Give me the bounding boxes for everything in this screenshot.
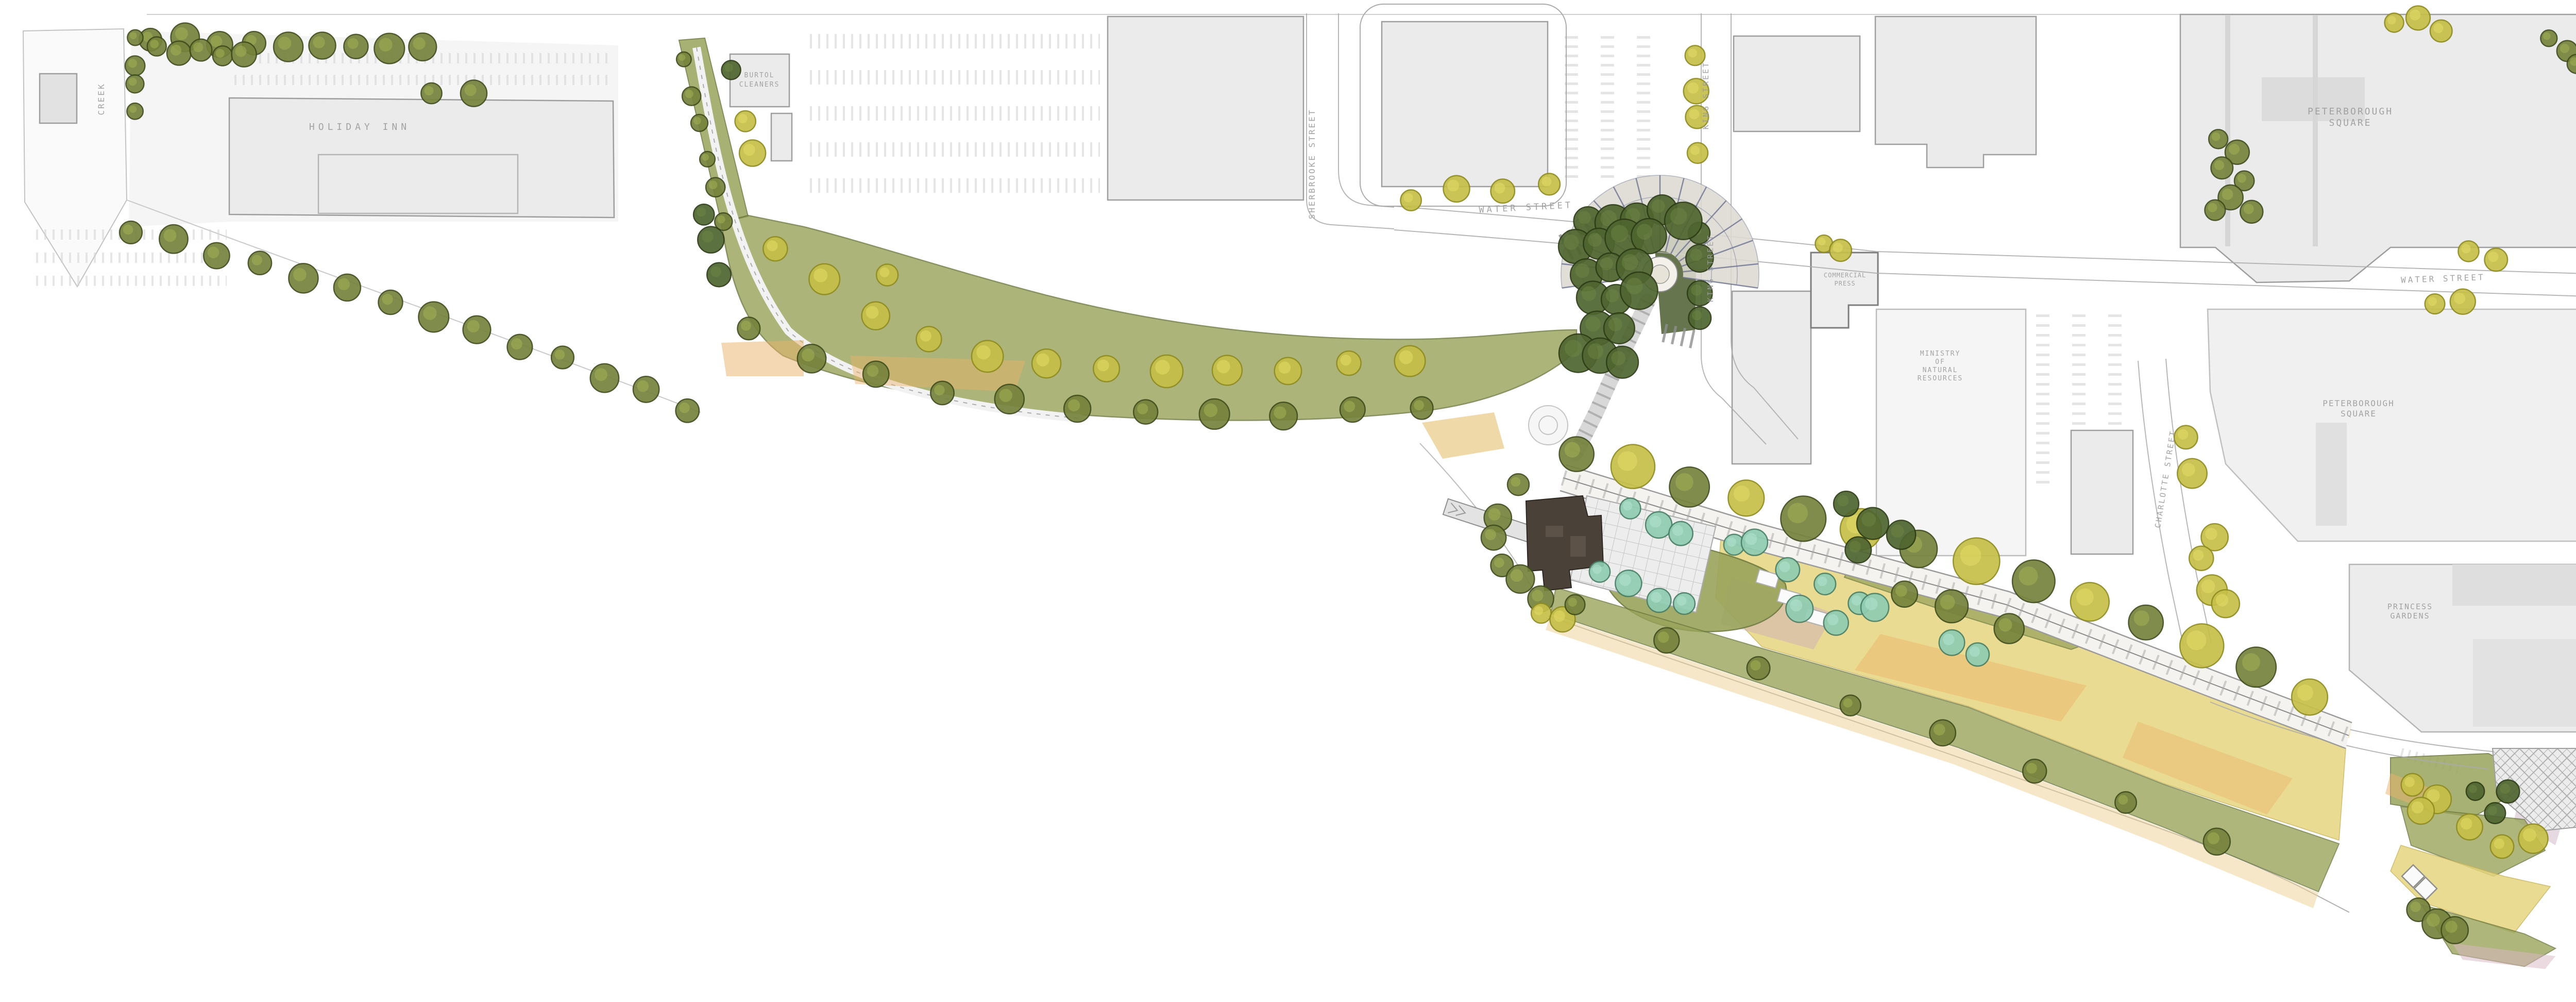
tree-highlight	[1585, 316, 1601, 332]
tree	[1565, 595, 1585, 615]
tree-highlight	[1344, 401, 1355, 412]
tree-highlight	[1204, 404, 1217, 417]
tree	[1647, 589, 1671, 612]
tree-highlight	[1691, 285, 1702, 296]
tree	[1829, 239, 1852, 261]
tree	[334, 274, 361, 301]
tree-highlight	[338, 278, 350, 290]
tree-highlight	[129, 106, 137, 113]
building-peterborough-square-south	[2208, 309, 2576, 541]
map-label: HOLIDAY INN	[309, 122, 410, 132]
building-ministry-natural-resources	[1876, 309, 2026, 556]
tree-highlight	[2019, 566, 2038, 586]
tree	[2456, 814, 2482, 840]
tree-highlight	[1692, 310, 1702, 321]
tree-highlight	[724, 63, 733, 72]
tree	[1687, 143, 1708, 163]
map-label: PETERBOROUGH	[2308, 106, 2393, 117]
tree	[274, 32, 303, 61]
tree-highlight	[2445, 921, 2458, 933]
map-label: OF	[1935, 358, 1945, 366]
map-label: NATURAL	[1923, 366, 1958, 374]
tree	[309, 32, 336, 59]
tree	[2401, 774, 2424, 796]
tree	[2406, 6, 2430, 30]
tree-highlight	[1068, 399, 1080, 411]
map-label: GARDENS	[2390, 611, 2430, 621]
tree-highlight	[2134, 610, 2149, 626]
tree	[344, 35, 368, 59]
tree-highlight	[1404, 193, 1413, 202]
tree	[2540, 30, 2557, 46]
princess-gardens-roof-b	[2473, 639, 2576, 727]
map-label: SHERBROOKE STREET	[1307, 109, 1317, 220]
tree	[2023, 759, 2046, 783]
tree	[930, 381, 954, 405]
tree-highlight	[1608, 318, 1622, 331]
tree	[917, 327, 942, 352]
tree	[378, 290, 402, 314]
tree-highlight	[2461, 818, 2472, 830]
tree	[1395, 346, 1426, 377]
tree-highlight	[2387, 16, 2396, 25]
tree-highlight	[1155, 360, 1170, 374]
tree-highlight	[1652, 199, 1665, 213]
waterfront-plaza-patch	[1422, 412, 1504, 459]
tree-highlight	[920, 330, 931, 342]
tree	[2211, 157, 2233, 179]
tree-highlight	[976, 345, 991, 360]
tree-highlight	[1940, 595, 1955, 610]
tree-highlight	[1658, 631, 1669, 643]
tree-highlight	[313, 36, 325, 48]
tree-highlight	[2208, 832, 2219, 844]
tree-highlight	[128, 59, 137, 68]
creek-west-block	[23, 29, 127, 287]
building-top-east	[1382, 22, 1548, 187]
tree	[2012, 560, 2055, 603]
tree-highlight	[1998, 618, 2012, 631]
tree	[698, 227, 724, 253]
tree-highlight	[164, 229, 177, 242]
map-label: KING STREET	[1706, 234, 1715, 302]
tree	[507, 335, 533, 360]
tree-highlight	[595, 368, 607, 381]
tree	[2450, 289, 2476, 314]
tree	[739, 140, 766, 166]
tree	[159, 225, 188, 253]
tree-highlight	[1690, 249, 1702, 261]
tree-highlight	[2428, 297, 2437, 306]
tree	[1669, 467, 1709, 507]
tree	[1615, 570, 1641, 596]
tree	[1491, 179, 1515, 203]
tree-highlight	[467, 320, 480, 332]
tree-highlight	[767, 240, 777, 251]
tree-highlight	[175, 27, 188, 40]
tree	[551, 346, 574, 369]
tree-highlight	[1565, 442, 1580, 458]
tree-highlight	[1690, 146, 1700, 155]
tree	[1064, 395, 1091, 422]
tree-highlight	[2118, 795, 2128, 805]
tree-highlight	[1611, 225, 1629, 242]
tree	[972, 341, 1003, 372]
tree	[147, 37, 166, 56]
tree	[2240, 201, 2263, 223]
tree	[1340, 397, 1365, 422]
tree-highlight	[2229, 144, 2240, 155]
tree	[1646, 512, 1672, 538]
tree	[995, 385, 1024, 414]
map-label: PRESS	[1834, 280, 1855, 287]
princess-gardens-roof-a	[2452, 564, 2576, 606]
tree	[2177, 459, 2207, 488]
tree-highlight	[347, 38, 358, 49]
tree-highlight	[130, 32, 137, 39]
tree	[2385, 13, 2404, 32]
tree-highlight	[743, 144, 755, 156]
tree	[1747, 657, 1770, 680]
tree	[2292, 679, 2328, 715]
tree	[289, 263, 318, 293]
tree-highlight	[679, 403, 689, 413]
tree-highlight	[2412, 801, 2424, 813]
tree	[1538, 173, 1560, 195]
tree	[1814, 573, 1836, 595]
tree	[421, 83, 442, 104]
tree-highlight	[1687, 82, 1699, 94]
tree-highlight	[1852, 595, 1862, 606]
tree	[231, 42, 256, 66]
building-king-east-strip	[1732, 291, 1811, 464]
tree	[1994, 613, 2024, 643]
tree-highlight	[1488, 508, 1501, 521]
tree	[2497, 780, 2520, 803]
tree-highlight	[1494, 182, 1505, 193]
tree-highlight	[2222, 189, 2233, 200]
parking-east-lot	[1571, 36, 1643, 180]
map-label: MINISTRY	[1920, 350, 1961, 358]
tree-highlight	[1676, 596, 1686, 606]
tree-highlight	[2201, 579, 2215, 593]
site-plan-svg: CREEKHOLIDAY INNBURTOLCLEANERSSHERBROOKE…	[0, 0, 2576, 1002]
tree-highlight	[555, 349, 565, 360]
tree	[418, 302, 449, 332]
tree-highlight	[379, 38, 392, 52]
tree-highlight	[216, 49, 225, 58]
tree-highlight	[1511, 569, 1523, 582]
tree-highlight	[2410, 901, 2420, 912]
tree	[126, 75, 144, 93]
tree-highlight	[1564, 235, 1579, 250]
tree-highlight	[2187, 630, 2206, 650]
tree-highlight	[702, 230, 714, 242]
tree-highlight	[2178, 429, 2188, 439]
tree-highlight	[1637, 224, 1653, 240]
tree-highlight	[679, 54, 685, 61]
tree	[1531, 603, 1551, 623]
tree-highlight	[1837, 495, 1849, 506]
street-sherbrooke-west-edge	[1307, 13, 1394, 229]
tree-highlight	[1750, 660, 1760, 671]
tree-highlight	[717, 215, 725, 223]
tree-highlight	[208, 246, 219, 258]
tree-highlight	[193, 42, 203, 52]
tree-highlight	[2454, 293, 2465, 304]
tree-highlight	[2182, 463, 2195, 476]
plaza-patch-west	[721, 340, 804, 376]
tree	[1728, 480, 1764, 516]
tree-highlight	[1745, 533, 1757, 545]
tree-highlight	[1565, 340, 1582, 357]
tree	[1953, 538, 1999, 584]
tree-highlight	[293, 268, 307, 281]
tree	[863, 361, 889, 387]
tree	[1212, 356, 1242, 386]
tree	[1966, 643, 1989, 666]
tree-highlight	[1341, 355, 1351, 365]
tree-highlight	[693, 117, 701, 125]
tree	[2236, 647, 2276, 687]
tree-highlight	[741, 321, 751, 331]
tree	[204, 243, 229, 269]
tree	[2204, 828, 2230, 855]
tree	[463, 316, 491, 344]
tree-highlight	[1651, 592, 1662, 603]
tree-highlight	[1960, 545, 1981, 566]
tree-highlight	[278, 37, 292, 50]
tree	[1606, 346, 1638, 378]
tree	[1589, 561, 1610, 582]
building-creek-block	[40, 74, 77, 123]
tree-highlight	[2427, 913, 2440, 927]
tree	[2174, 426, 2197, 449]
tree-highlight	[1414, 400, 1424, 410]
tree-highlight	[1623, 501, 1632, 510]
tree	[1840, 695, 1861, 716]
map-label: PETERBOROUGH	[2323, 398, 2395, 408]
tree	[1929, 720, 1955, 746]
tree	[125, 56, 145, 75]
tree-highlight	[1780, 561, 1790, 572]
tree-highlight	[1727, 538, 1736, 547]
tree	[1845, 537, 1872, 563]
tree-highlight	[1575, 264, 1589, 278]
map-label: KING STREET	[1701, 61, 1710, 129]
tree	[1093, 356, 1120, 382]
tree-highlight	[1097, 360, 1109, 372]
building-king-north-b	[1875, 16, 2036, 168]
tree-highlight	[2238, 174, 2246, 182]
tree	[1611, 445, 1655, 489]
tree	[1275, 358, 1301, 385]
tree-highlight	[2026, 763, 2037, 774]
tree-highlight	[1827, 614, 1839, 626]
map-label: RESOURCES	[1918, 375, 1963, 382]
tree-highlight	[2488, 252, 2498, 262]
tree-highlight	[1675, 473, 1693, 491]
tree-highlight	[1849, 541, 1861, 553]
tree	[2430, 20, 2452, 42]
tree-highlight	[802, 348, 815, 361]
tree-highlight	[424, 86, 433, 95]
tree-highlight	[1865, 598, 1877, 610]
tree-highlight	[866, 306, 878, 319]
tree-highlight	[1534, 606, 1543, 615]
tree-highlight	[2208, 203, 2217, 212]
tree	[2458, 241, 2479, 261]
tree-highlight	[2212, 132, 2221, 141]
tree-highlight	[1588, 343, 1604, 359]
tree	[1269, 402, 1297, 430]
tree	[2485, 248, 2508, 272]
tree	[374, 34, 404, 64]
tree	[1133, 400, 1158, 424]
tree	[1741, 529, 1768, 556]
tree	[127, 103, 143, 119]
map-label: PRINCESS	[2387, 602, 2433, 611]
tree	[1857, 508, 1889, 540]
tree	[676, 399, 699, 422]
tree	[706, 178, 725, 197]
tree-highlight	[702, 154, 709, 160]
tree-highlight	[2461, 244, 2470, 253]
tree	[2189, 546, 2213, 571]
tree-highlight	[1532, 590, 1544, 602]
tree-highlight	[1399, 350, 1413, 364]
tree	[1891, 581, 1917, 607]
tree	[1654, 628, 1679, 653]
tree	[1444, 176, 1470, 202]
tree	[1604, 313, 1635, 344]
tree	[633, 376, 659, 402]
building-top-west	[1108, 16, 1303, 200]
tree-highlight	[1895, 585, 1907, 597]
tree-highlight	[1611, 351, 1625, 365]
tree-highlight	[999, 389, 1012, 402]
tree-highlight	[697, 207, 706, 216]
creek-corridor-main	[721, 215, 1577, 420]
map-label: CREEK	[96, 82, 106, 115]
tree-highlight	[1934, 724, 1945, 736]
tree	[1939, 630, 1965, 656]
tree	[1861, 593, 1889, 621]
tree-highlight	[2494, 839, 2504, 849]
tree-highlight	[2469, 785, 2477, 793]
tree-highlight	[235, 46, 247, 57]
tree-highlight	[2076, 588, 2094, 606]
tree	[1665, 202, 1702, 239]
tree-highlight	[934, 385, 944, 395]
tree	[590, 364, 619, 392]
tree	[2442, 916, 2468, 943]
tree-highlight	[1689, 109, 1699, 119]
tree-highlight	[1688, 48, 1697, 57]
tree-highlight	[1626, 278, 1643, 295]
tree-highlight	[2560, 44, 2569, 53]
tree	[2180, 624, 2224, 667]
tree	[2205, 200, 2225, 221]
tree-highlight	[1818, 576, 1827, 586]
tree-highlight	[1672, 525, 1683, 536]
tree-highlight	[1861, 512, 1876, 527]
tree-highlight	[1943, 633, 1954, 645]
tree	[1400, 190, 1421, 210]
tree-highlight	[413, 37, 425, 49]
tree-highlight	[2214, 160, 2224, 170]
tree	[2408, 797, 2434, 824]
tree-highlight	[1494, 558, 1504, 568]
tree	[722, 60, 741, 79]
tree-highlight	[1891, 525, 1904, 538]
map-label: COMMERCIAL	[1824, 272, 1866, 279]
tree	[248, 252, 272, 275]
tree	[2071, 582, 2109, 621]
tree	[1337, 351, 1361, 375]
tree-highlight	[171, 45, 181, 56]
tree	[1673, 593, 1695, 614]
tree	[1776, 558, 1800, 581]
tree-highlight	[1606, 289, 1619, 303]
tree	[2209, 129, 2228, 148]
tree-highlight	[1833, 243, 1843, 253]
tree-highlight	[382, 294, 393, 305]
tree-highlight	[1790, 599, 1802, 612]
tree-highlight	[511, 338, 522, 349]
tree-highlight	[2216, 594, 2228, 606]
tree-highlight	[1843, 698, 1853, 708]
tree-highlight	[2193, 550, 2204, 561]
tree	[2425, 294, 2445, 314]
tree	[409, 33, 436, 61]
tree-highlight	[1578, 211, 1591, 224]
building-holiday-inn	[229, 98, 614, 218]
tree-highlight	[814, 269, 827, 282]
plaza-circle-outer	[1529, 406, 1568, 445]
tree-highlight	[1274, 406, 1286, 419]
tree-highlight	[1588, 233, 1602, 247]
tree	[127, 30, 143, 45]
site-plan-canvas: CREEKHOLIDAY INNBURTOLCLEANERSSHERBROOKE…	[0, 0, 2576, 1002]
tree-highlight	[2488, 806, 2497, 815]
tree-highlight	[1734, 486, 1750, 502]
tree-highlight	[2433, 23, 2443, 33]
tree	[691, 114, 708, 131]
tree	[2129, 605, 2163, 640]
tree	[1507, 474, 1529, 495]
tree	[700, 152, 715, 167]
tree-highlight	[2404, 777, 2415, 787]
tree	[682, 87, 701, 106]
tree-highlight	[1137, 404, 1148, 414]
tree	[1620, 272, 1657, 309]
building-commercial-press	[1811, 253, 1878, 328]
tree-highlight	[1541, 177, 1551, 187]
tree	[1032, 349, 1061, 378]
tree-highlight	[1279, 361, 1291, 374]
tree	[2212, 590, 2240, 617]
tree	[676, 52, 691, 67]
tree-highlight	[1447, 179, 1459, 191]
tree-highlight	[211, 36, 223, 47]
tree-highlight	[1622, 254, 1638, 271]
tree	[1935, 590, 1968, 623]
map-label: WATER STREET	[1479, 200, 1573, 215]
tree-highlight	[150, 40, 159, 48]
tree	[1506, 565, 1534, 593]
tree-highlight	[2244, 204, 2254, 214]
